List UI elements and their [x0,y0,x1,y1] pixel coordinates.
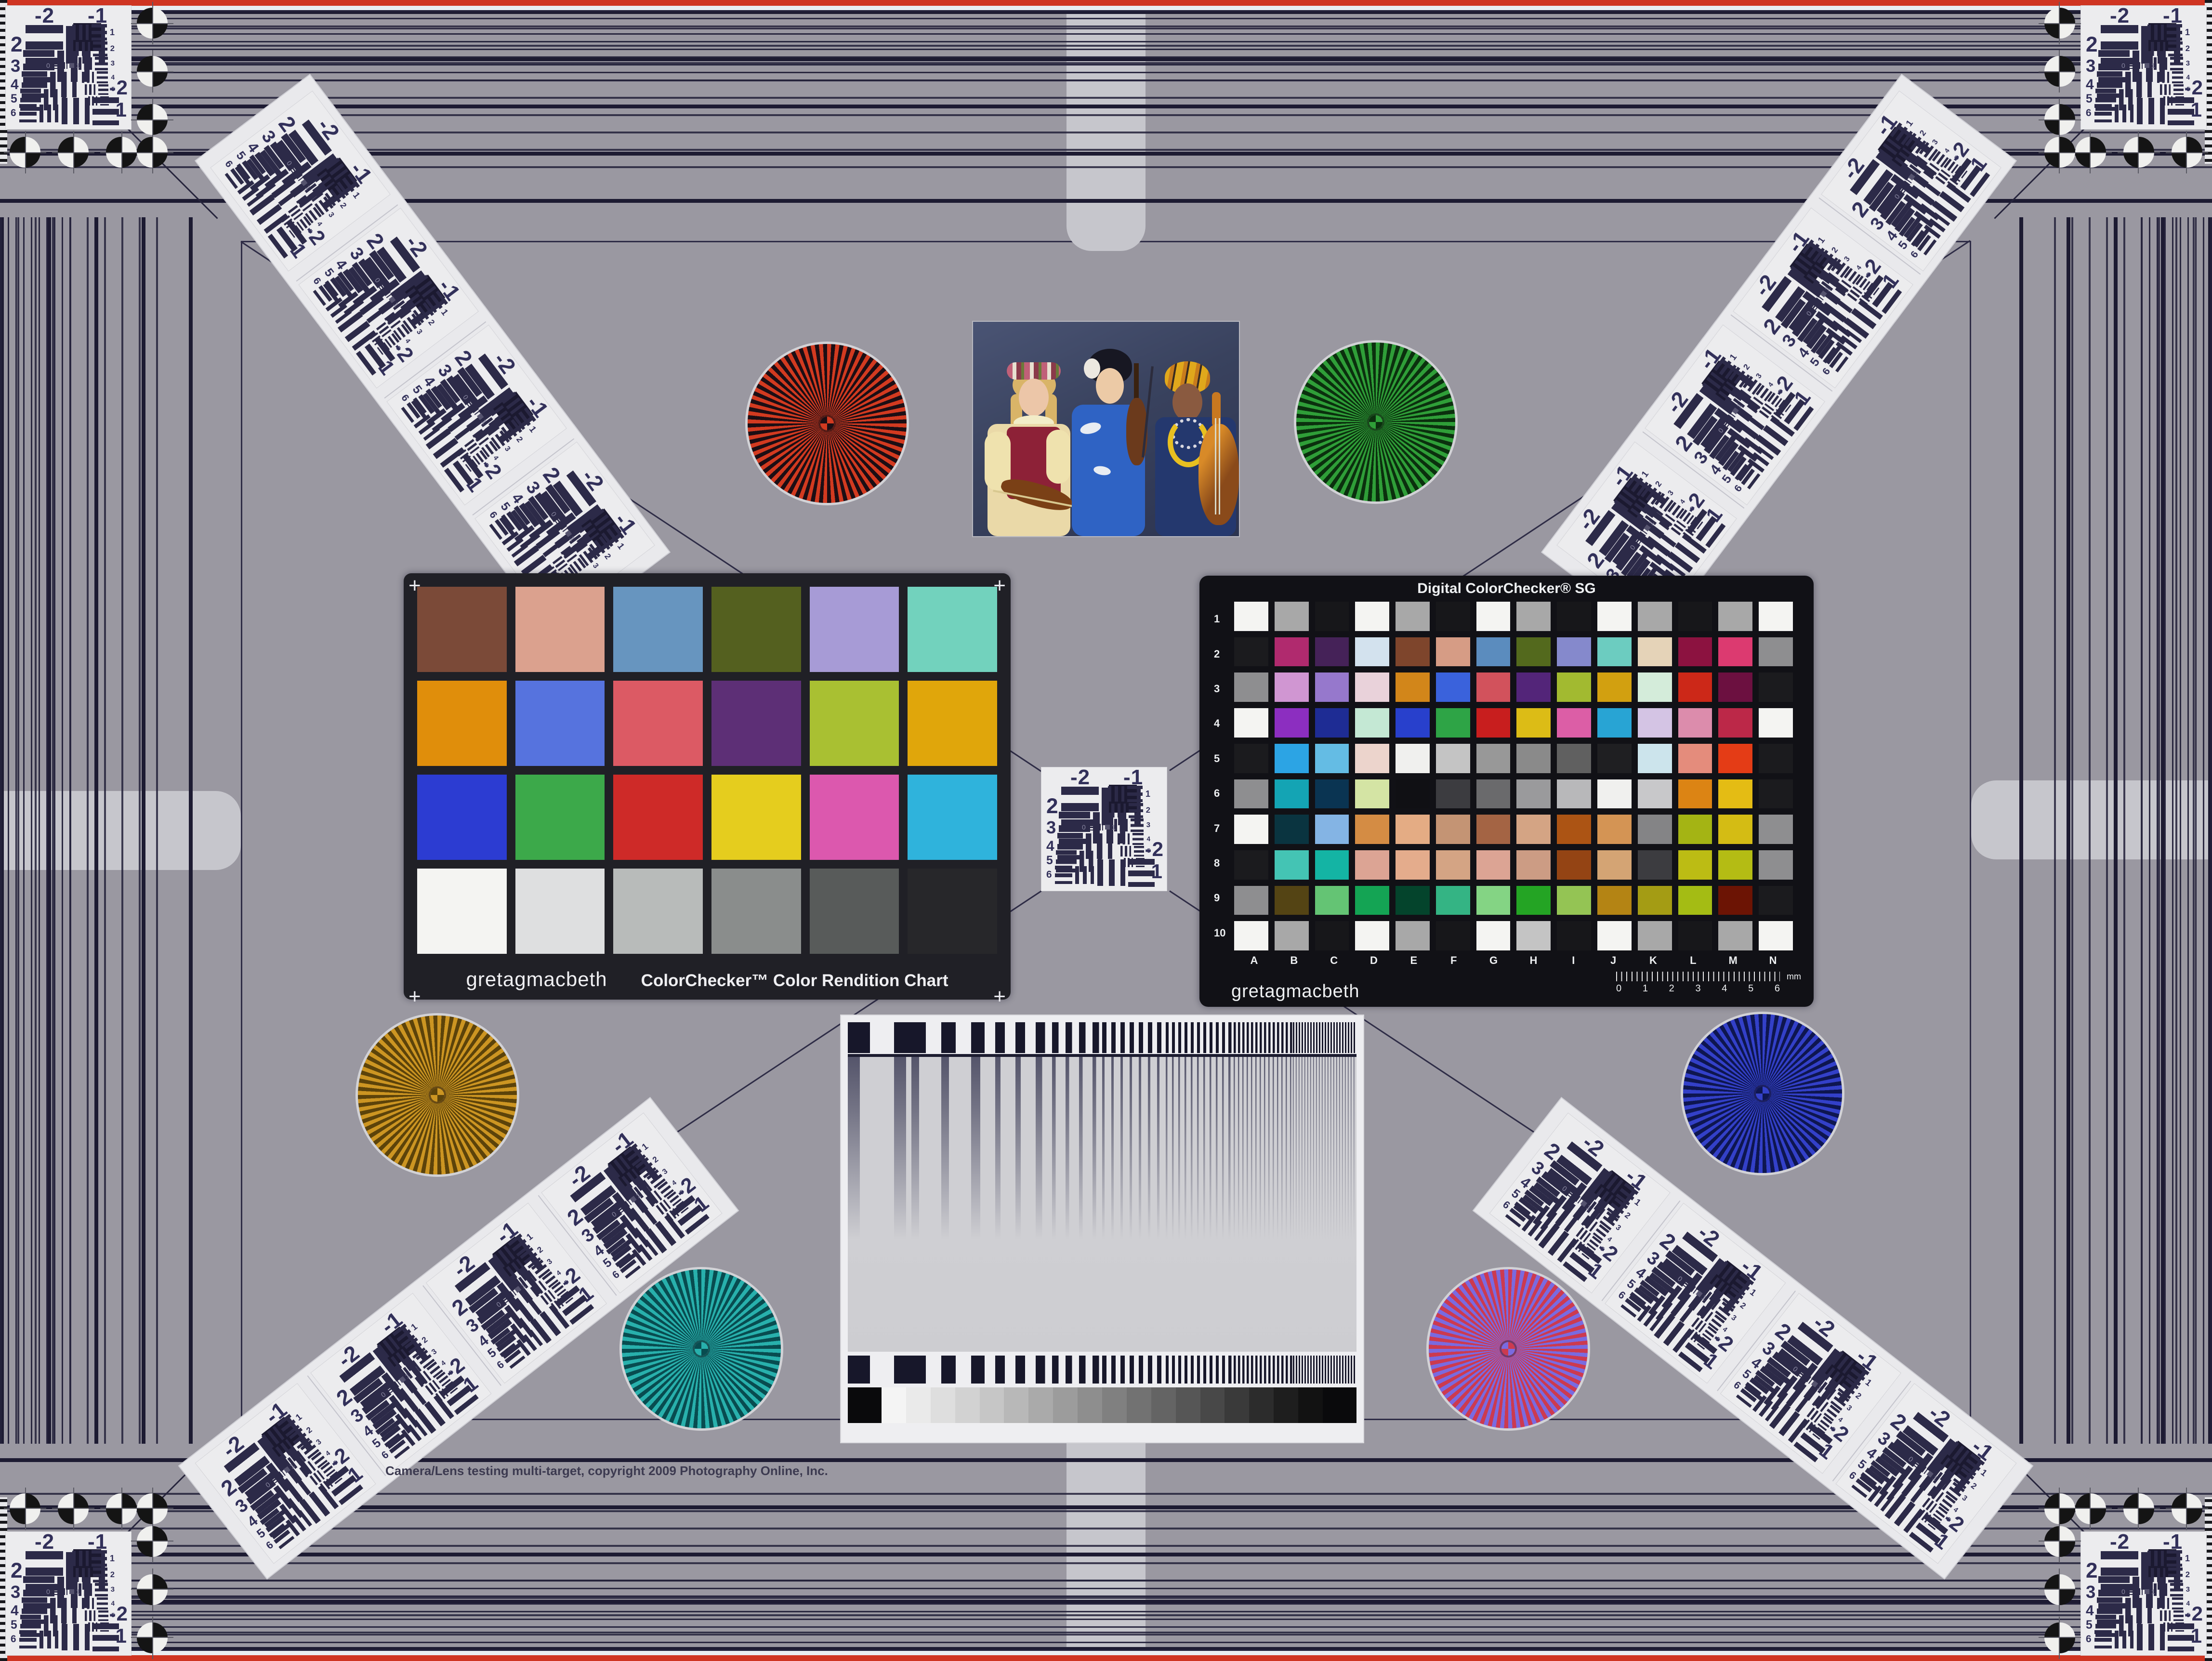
sg-color-patch [1275,708,1309,738]
gray-step [1028,1387,1053,1423]
corner-target-bottom-left: -2 -1 2 3 4 5 6 1 2 3 4 5 6 0 1 [4,1491,170,1657]
sg-row-label: 9 [1214,892,1225,904]
sg-color-patch [1597,602,1632,631]
sg-chart-title: Digital ColorChecker® SG [1199,580,1814,597]
siemens-star-red [748,344,907,503]
siemens-star-blue [1683,1014,1842,1173]
sg-color-patch [1234,637,1268,667]
sg-patch-grid [1234,602,1793,950]
usaf-row: 2 [1111,803,1150,818]
usaf-group-label: -2 [1070,765,1090,790]
sg-column-label: I [1572,954,1575,967]
sg-color-patch [1355,637,1389,667]
sg-row-label: 10 [1214,927,1225,939]
sg-color-patch [1718,672,1752,702]
sg-color-patch [1759,886,1793,915]
color-patch [613,775,703,860]
sg-color-patch [1759,602,1793,631]
color-patch [908,775,997,860]
tri-bar-vertical [2115,1631,2133,1648]
usaf-inner-cluster: 0 1 [2121,62,2155,69]
sg-color-patch [1718,815,1752,844]
gray-step [1274,1387,1298,1423]
gray-step [955,1387,980,1423]
gray-step [1151,1387,1176,1423]
sg-color-patch [1436,850,1470,880]
usaf-row [1097,859,1155,887]
quadrant-fiducial-icon [2123,1493,2154,1524]
quadrant-fiducial-icon [137,137,168,168]
quadrant-fiducial-icon [137,104,168,135]
usaf-row: 2 [76,1568,115,1582]
sg-color-patch [1396,602,1430,631]
sg-color-patch [1476,921,1511,950]
sg-color-patch [1759,850,1793,880]
sg-row-label: 6 [1214,787,1225,800]
quadrant-fiducial-icon [2044,1526,2075,1557]
sg-color-patch [1476,850,1511,880]
sg-color-patch [1275,672,1309,702]
color-patch [810,775,899,860]
sg-color-patch [1557,850,1591,880]
colorchecker-sg-chart: Digital ColorChecker® SG 12345678910 ABC… [1199,576,1814,1007]
quadrant-fiducial-icon [2044,104,2075,135]
sg-row-label: 3 [1214,683,1225,695]
color-patch [417,869,507,954]
sg-color-patch [1436,672,1470,702]
sg-color-patch [1315,815,1349,844]
sg-color-patch [1315,637,1349,667]
usaf-group-label: -2 [2110,4,2130,28]
chirp-bar-strip-top [848,1022,1356,1053]
tri-bar-horizontal [19,1630,37,1648]
sg-color-patch [1234,850,1268,880]
quadrant-fiducial-icon [58,1493,89,1524]
sg-color-patch [1234,744,1268,773]
tri-bar-vertical [39,1631,58,1648]
chart-title: ColorChecker™ Color Rendition Chart [641,971,948,990]
sg-column-label: K [1649,954,1657,967]
quadrant-fiducial-icon [2044,1493,2075,1524]
sg-color-patch [1396,815,1430,844]
sg-color-patch [1516,815,1551,844]
sg-color-patch [1234,708,1268,738]
wedge-black-end [1323,1387,1356,1423]
sg-color-patch [1678,815,1712,844]
photo-flower-crown [1007,362,1061,380]
sg-color-patch [1759,779,1793,809]
wedge-steps [882,1387,1323,1423]
color-patch [417,587,507,672]
sg-color-patch [1476,708,1511,738]
usaf-group-label: -2 [109,1602,128,1625]
sg-color-patch [1678,886,1712,915]
sg-color-patch [1759,921,1793,950]
colorchecker-patch-grid [417,587,997,954]
sg-color-patch [1315,672,1349,702]
photo-cello-string [1215,418,1216,514]
sg-color-patch [1355,886,1389,915]
sg-color-patch [1436,886,1470,915]
sg-color-patch [1678,779,1712,809]
usaf-row [2137,1623,2194,1651]
test-chart-canvas: -2 -1 2 3 4 5 6 1 2 3 4 5 6 0 1 [0,0,2212,1661]
quadrant-fiducial-icon [2123,137,2154,168]
usaf-row: 6 [1046,866,1094,884]
sg-color-patch [1516,637,1551,667]
sg-color-patch [1678,672,1712,702]
ruler-number: 0 [1616,983,1621,994]
siemens-star-green [1296,343,1455,501]
grayscale-step-wedge [848,1387,1356,1423]
star-center-dot [1756,1087,1769,1100]
usaf-inner-cluster: 0 1 [46,1588,80,1595]
usaf-inner-cluster: 0 1 [46,62,80,69]
sg-color-patch [1638,815,1672,844]
sg-color-patch [1355,744,1389,773]
ruler-number: 3 [1695,983,1700,994]
top-red-edge-line [0,0,2212,6]
colorchecker-caption: gretagmacbeth ColorChecker™ Color Rendit… [404,968,1011,991]
star-center-dot [431,1088,444,1102]
sg-color-patch [1315,886,1349,915]
sg-color-patch [1638,921,1672,950]
usaf-group-label: 1 [1151,860,1163,883]
sg-color-patch [1597,850,1632,880]
sg-color-patch [1597,886,1632,915]
sg-color-patch [1476,779,1511,809]
sg-color-patch [1355,815,1389,844]
color-patch [515,775,605,860]
sg-color-patch [1396,850,1430,880]
sg-color-patch [1678,708,1712,738]
gray-step [931,1387,955,1423]
sg-color-patch [1234,602,1268,631]
quadrant-fiducial-icon [2044,1622,2075,1653]
sg-color-patch [1678,850,1712,880]
color-patch [810,869,899,954]
gray-step [1176,1387,1200,1423]
gray-step [1102,1387,1127,1423]
sg-row-label: 5 [1214,752,1225,765]
sg-color-patch [1678,637,1712,667]
color-patch [613,587,703,672]
siemens-star-teal [622,1269,781,1428]
sg-color-patch [1759,708,1793,738]
sg-color-patch [1355,708,1389,738]
sg-color-patch [1638,708,1672,738]
ruler-unit-label: mm [1787,972,1801,982]
tri-bar-horizontal [19,104,37,122]
sg-color-patch [1436,921,1470,950]
color-patch [711,587,801,672]
usaf-resolution-target: -2 -1 2 3 4 5 6 1 2 3 4 5 6 0 1 [2081,6,2206,129]
center-resolution-target: -2 -1 2 3 4 5 6 1 2 3 4 5 6 0 1 [1041,767,1167,891]
sg-color-patch [1557,886,1591,915]
quadrant-fiducial-icon [58,137,89,168]
quadrant-fiducial-icon [2044,56,2075,87]
sg-color-patch [1275,637,1309,667]
usaf-group-label: 1 [2191,1624,2202,1648]
sg-column-labels: ABCDEFGHIJKLMN [1234,954,1793,967]
sg-color-patch [1597,708,1632,738]
sg-column-label: D [1370,954,1378,967]
quadrant-fiducial-icon [137,8,168,39]
sg-color-patch [1759,637,1793,667]
sg-color-patch [1275,850,1309,880]
sg-color-patch [1678,744,1712,773]
usaf-row: 2 [2151,1568,2190,1582]
color-patch [711,681,801,766]
gray-step [1298,1387,1323,1423]
sg-color-patch [1234,886,1268,915]
sg-color-patch [1718,921,1752,950]
sg-color-patch [1476,815,1511,844]
usaf-group-label: -2 [2185,76,2203,99]
sg-color-patch [1234,779,1268,809]
sg-color-patch [1516,850,1551,880]
usaf-row: 2 [2151,41,2190,56]
sg-color-patch [1436,637,1470,667]
usaf-inner-cluster: 0 1 [2121,1588,2155,1595]
corner-target-top-left: -2 -1 2 3 4 5 6 1 2 3 4 5 6 0 1 [4,4,170,170]
star-center-dot [1501,1342,1515,1356]
sg-color-patch [1516,602,1551,631]
sg-color-patch [1557,744,1591,773]
chirp-bar-strip-bottom [848,1356,1356,1384]
tri-bar-horizontal [2094,104,2112,122]
color-patch [810,587,899,672]
sg-color-patch [1275,602,1309,631]
color-patch [908,587,997,672]
sg-color-patch [1557,672,1591,702]
sg-color-patch [1396,672,1430,702]
sg-color-patch [1678,602,1712,631]
star-center-dot [695,1342,708,1356]
sg-color-patch [1315,850,1349,880]
quadrant-fiducial-icon [10,137,40,168]
sg-color-patch [1396,744,1430,773]
edge-center-bar-top [1066,10,1145,251]
sg-color-patch [1476,886,1511,915]
sg-color-patch [1315,921,1349,950]
color-patch [810,681,899,766]
sg-mm-ruler: 0123456 mm [1616,972,1780,994]
tri-bar-horizontal [1055,866,1073,884]
gray-step [1127,1387,1151,1423]
sg-color-patch [1718,602,1752,631]
border-band-left [0,207,207,1454]
portrait-test-photo [973,322,1239,536]
sg-color-patch [1355,602,1389,631]
sg-color-patch [1557,602,1591,631]
sg-color-patch [1355,672,1389,702]
sg-color-patch [1597,672,1632,702]
sg-color-patch [1315,708,1349,738]
photo-sleeve [1046,430,1070,484]
sg-color-patch [1436,815,1470,844]
sg-row-label: 8 [1214,857,1225,870]
color-patch [417,681,507,766]
gray-step [906,1387,931,1423]
color-patch [711,775,801,860]
usaf-row: 3 [79,57,115,70]
sg-color-patch [1476,672,1511,702]
sg-column-label: H [1529,954,1537,967]
sg-column-label: F [1450,954,1457,967]
usaf-group-label: 1 [116,98,127,121]
gray-step [1078,1387,1102,1423]
sg-row-labels: 12345678910 [1214,602,1225,950]
sg-color-patch [1436,602,1470,631]
ruler-number: 2 [1669,983,1674,994]
star-center-dot [820,417,834,430]
usaf-group-label: -2 [2110,1530,2130,1554]
sg-color-patch [1275,886,1309,915]
star-center-dot [1369,415,1382,429]
color-patch [711,869,801,954]
quadrant-fiducial-icon [137,1526,168,1557]
sg-color-patch [1516,708,1551,738]
sg-column-label: G [1489,954,1498,967]
tri-bar-vertical [39,105,58,122]
sg-color-patch [1557,637,1591,667]
color-patch [613,869,703,954]
usaf-resolution-target: -2 -1 2 3 4 5 6 1 2 3 4 5 6 0 1 [6,1532,131,1655]
sg-color-patch [1638,850,1672,880]
usaf-row: 1 [2147,1550,2190,1567]
sg-row-label: 4 [1214,717,1225,730]
usaf-row: 1 [72,1550,115,1567]
corner-target-top-right: -2 -1 2 3 4 5 6 1 2 3 4 5 6 0 1 [2042,4,2208,170]
sg-color-patch [1516,886,1551,915]
tri-bar-vertical [1075,866,1093,884]
sg-row-label: 7 [1214,822,1225,835]
sg-color-patch [1718,744,1752,773]
sg-color-patch [1436,708,1470,738]
bottom-red-edge-line [0,1655,2212,1661]
siemens-star-red-blue [1429,1269,1588,1428]
photo-face-right [1172,383,1202,421]
sg-color-patch [1597,744,1632,773]
sg-color-patch [1396,637,1430,667]
sg-color-patch [1597,779,1632,809]
border-band-right [2005,207,2212,1454]
color-patch [613,681,703,766]
sg-color-patch [1718,779,1752,809]
sg-column-label: M [1729,954,1738,967]
usaf-group-label: 1 [2191,98,2202,121]
quadrant-fiducial-icon [137,1622,168,1653]
frequency-sweep-panel [841,1015,1363,1442]
ruler-number: 4 [1722,983,1727,994]
usaf-row: 1 [72,24,115,40]
sg-color-patch [1234,815,1268,844]
usaf-row: 6 [11,1630,58,1648]
edge-center-bar-right [1971,780,2212,859]
sg-color-patch [1275,921,1309,950]
sg-color-patch [1315,602,1349,631]
sg-column-label: L [1690,954,1696,967]
contrast-fade-overlay [848,1057,1356,1352]
sg-color-patch [1638,886,1672,915]
sg-color-patch [1396,779,1430,809]
edge-center-bar-left [0,791,241,870]
copyright-text: Camera/Lens testing multi-target, copyri… [385,1463,828,1478]
sg-column-label: C [1330,954,1338,967]
sg-color-patch [1396,708,1430,738]
color-patch [417,775,507,860]
usaf-row: 6 [2086,104,2133,122]
bottom-white-edge-line [0,1651,2212,1655]
sg-color-patch [1516,744,1551,773]
tri-bar-vertical [2115,105,2133,122]
gray-step [1249,1387,1274,1423]
color-patch [515,869,605,954]
brand-text: gretagmacbeth [1231,981,1360,1002]
sg-color-patch [1436,744,1470,773]
color-patch [908,681,997,766]
quadrant-fiducial-icon [137,1493,168,1524]
sg-color-patch [1355,921,1389,950]
usaf-group-label: -2 [1145,838,1164,861]
usaf-group-label: -2 [109,76,128,99]
tri-bar-horizontal [2094,1630,2112,1648]
quadrant-fiducial-icon [2172,1493,2202,1524]
usaf-row: 6 [2086,1630,2133,1648]
usaf-row [2137,97,2194,125]
usaf-row: 2 [76,41,115,56]
ruler-number: 6 [1775,983,1780,994]
sg-color-patch [1476,602,1511,631]
quadrant-fiducial-icon [2044,1574,2075,1605]
sg-color-patch [1638,779,1672,809]
usaf-row: 1 [1108,786,1150,802]
sg-color-patch [1557,779,1591,809]
sg-color-patch [1638,637,1672,667]
sg-color-patch [1436,779,1470,809]
sg-color-patch [1597,921,1632,950]
quadrant-fiducial-icon [137,56,168,87]
sg-column-label: B [1290,954,1298,967]
usaf-row: 3 [2154,1583,2190,1596]
quadrant-fiducial-icon [106,1493,137,1524]
sg-color-patch [1275,744,1309,773]
sweep-fade-field [848,1057,1356,1352]
ruler-number: 5 [1748,983,1753,994]
siemens-star-gold [358,1015,517,1174]
sg-color-patch [1718,708,1752,738]
sg-color-patch [1759,672,1793,702]
usaf-row [62,1623,119,1651]
sg-color-patch [1234,672,1268,702]
sg-color-patch [1315,744,1349,773]
photo-face-left [1019,379,1049,416]
usaf-row [62,97,119,125]
sg-color-patch [1476,744,1511,773]
ruler-ticks [1616,972,1780,981]
sg-color-patch [1355,850,1389,880]
sg-color-patch [1516,921,1551,950]
gray-step [1200,1387,1225,1423]
color-patch [515,587,605,672]
sg-color-patch [1516,672,1551,702]
sg-color-patch [1557,921,1591,950]
usaf-group-label: -2 [35,4,54,28]
color-patch [515,681,605,766]
sg-color-patch [1275,815,1309,844]
photo-face-middle [1096,368,1124,404]
